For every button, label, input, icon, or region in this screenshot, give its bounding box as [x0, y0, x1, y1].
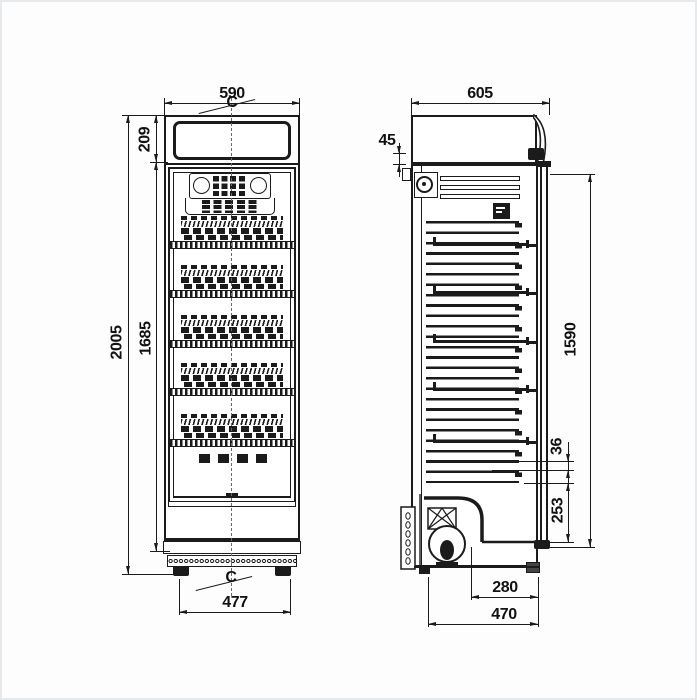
- arrow-icon: [154, 162, 158, 170]
- bracket-tab: [433, 382, 436, 389]
- extension-line: [538, 577, 539, 627]
- bracket-tab: [433, 237, 436, 244]
- air-duct-slat: [440, 185, 520, 190]
- extension-line: [471, 547, 472, 600]
- interior-floor-line: [174, 496, 290, 498]
- bottle-row: [181, 315, 283, 339]
- ventilation-grille: [167, 555, 297, 567]
- dim-line-1590: [590, 174, 591, 547]
- dim-477: 477: [205, 595, 265, 610]
- arrow-icon: [530, 622, 538, 626]
- bottle-row: [181, 414, 283, 438]
- shelf: [169, 290, 295, 298]
- dim-line-280: [471, 597, 538, 598]
- arrow-icon: [292, 101, 300, 105]
- arrow-icon: [542, 101, 550, 105]
- arrow-icon: [566, 483, 570, 491]
- shelf-bracket: [433, 243, 528, 246]
- header-bottom-line: [164, 163, 300, 165]
- bracket-front: [528, 389, 537, 392]
- dim-280: 280: [475, 580, 535, 595]
- shelf-bracket: [433, 440, 528, 443]
- bottle-row: [181, 216, 283, 240]
- extension-line: [150, 162, 168, 163]
- shelf: [169, 388, 295, 396]
- bottle-row: [181, 363, 283, 387]
- extension-line: [150, 551, 170, 552]
- wall-spacer: [402, 168, 411, 181]
- dim-45: 45: [376, 133, 398, 148]
- arrow-icon: [588, 174, 592, 182]
- bracket-front: [528, 341, 537, 344]
- dim-line-477: [179, 612, 291, 613]
- bottle-row: [181, 265, 283, 289]
- dim-line-470: [428, 624, 538, 625]
- canopy: [411, 115, 537, 164]
- canopy-latch: [528, 148, 544, 160]
- dim-line-36: [568, 442, 569, 489]
- floor-tab: [226, 493, 238, 496]
- technical-drawing: C C 590 209 1685 2005 477: [0, 0, 697, 700]
- foot-left: [173, 567, 189, 576]
- extension-line: [428, 577, 429, 627]
- arrow-icon: [411, 101, 419, 105]
- extension-line: [550, 547, 595, 548]
- thermostat-detail: [496, 211, 502, 213]
- arrow-icon: [154, 543, 158, 551]
- glass-door-side: [540, 166, 548, 547]
- air-duct-slat: [440, 194, 520, 199]
- base-top-line: [164, 538, 300, 540]
- evaporator-coils: [426, 221, 519, 483]
- door-bottom-rail: [168, 501, 296, 507]
- fan-center-grid: [213, 176, 247, 196]
- arrow-icon: [566, 454, 570, 462]
- bracket-front: [528, 441, 537, 444]
- arrow-icon: [530, 595, 538, 599]
- dim-2005: 2005: [110, 318, 125, 368]
- shelf-bracket: [433, 340, 528, 343]
- extension-line: [492, 470, 574, 471]
- dim-line-605: [411, 103, 550, 104]
- dim-590: 590: [202, 86, 262, 101]
- shelf: [169, 340, 295, 348]
- door-top-hinge: [538, 161, 551, 167]
- dim-605: 605: [450, 86, 510, 101]
- fan-left-icon: [193, 177, 210, 194]
- base-plinth: [163, 541, 301, 554]
- arrow-icon: [283, 610, 291, 614]
- arrow-icon: [588, 539, 592, 547]
- dim-line-590: [164, 103, 300, 104]
- shelf-bracket: [433, 291, 528, 294]
- bracket-tab: [433, 334, 436, 341]
- arrow-icon: [397, 164, 401, 172]
- dim-line-1685: [156, 162, 157, 551]
- bracket-front: [528, 292, 537, 295]
- shelf: [169, 439, 295, 447]
- fan-right-icon: [250, 177, 267, 194]
- air-duct-slat: [440, 176, 520, 181]
- foot-right: [275, 567, 291, 576]
- arrow-icon: [179, 610, 187, 614]
- arrow-icon: [566, 534, 570, 542]
- extension-line: [550, 542, 574, 543]
- header-display-panel: [173, 121, 291, 160]
- dim-36: 36: [550, 427, 565, 467]
- shelf: [169, 241, 295, 249]
- thermostat-detail: [496, 207, 505, 209]
- extension-line: [122, 574, 174, 575]
- bracket-tab: [433, 434, 436, 441]
- dim-1685: 1685: [139, 314, 154, 364]
- shelf-bracket: [433, 388, 528, 391]
- bracket-tab: [433, 285, 436, 292]
- arrow-icon: [126, 566, 130, 574]
- arrow-icon: [154, 154, 158, 162]
- arrow-icon: [164, 101, 172, 105]
- dim-209: 209: [138, 120, 153, 160]
- dim-line-2005: [128, 115, 129, 574]
- centerline: [231, 98, 232, 596]
- fan-housing: [185, 198, 275, 215]
- fan-roll-hub: [422, 182, 426, 186]
- bracket-front: [528, 244, 537, 247]
- dim-470: 470: [474, 607, 534, 622]
- lower-vent-slots: [199, 454, 269, 463]
- arrow-icon: [471, 595, 479, 599]
- arrow-icon: [154, 115, 158, 123]
- dim-253: 253: [551, 486, 566, 536]
- dim-1590: 1590: [564, 315, 579, 365]
- arrow-icon: [126, 115, 130, 123]
- arrow-icon: [428, 622, 436, 626]
- arrow-icon: [566, 470, 570, 478]
